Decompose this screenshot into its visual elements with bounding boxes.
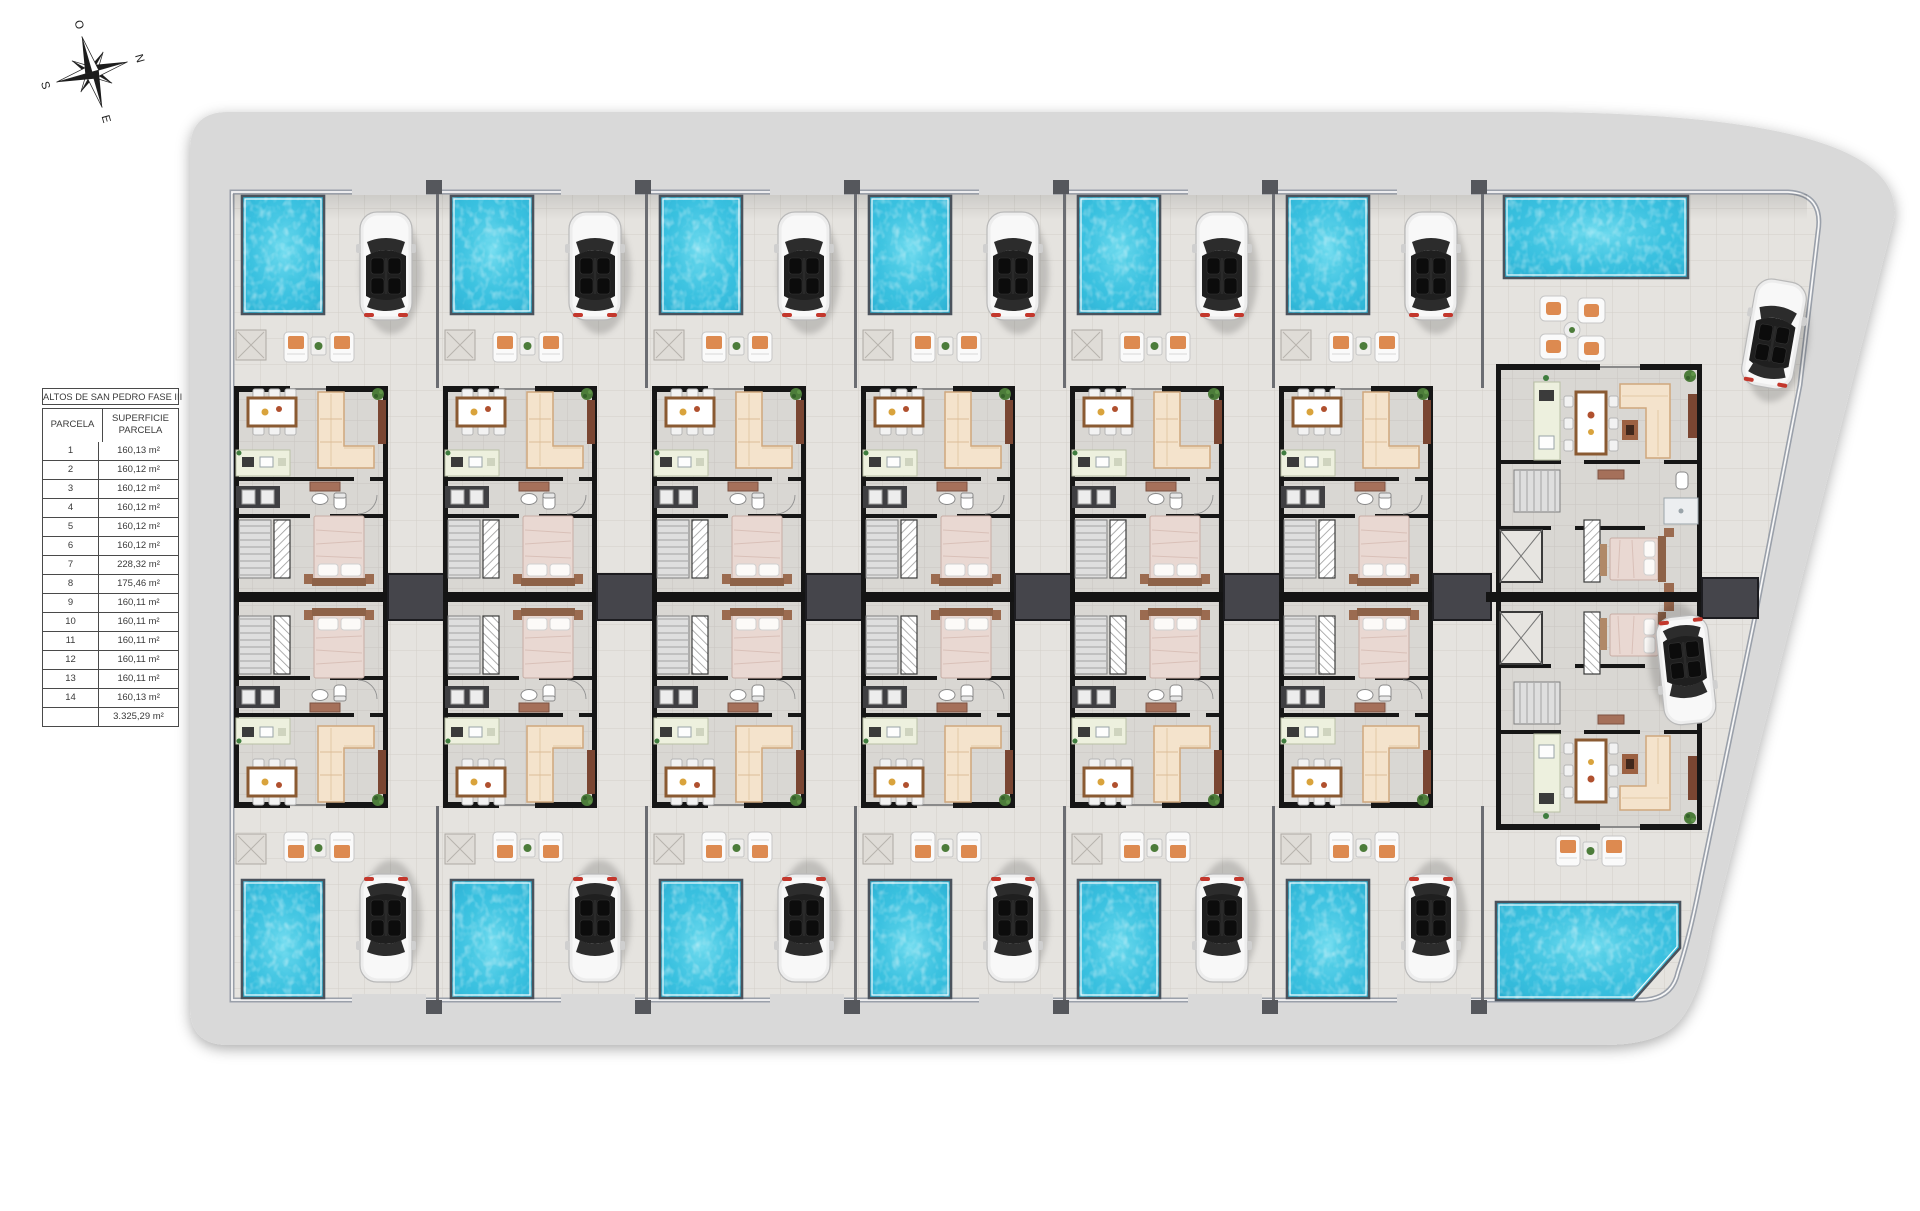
outdoor-shower-tile [236,834,266,864]
tv-unit [1423,400,1431,444]
kitchen-counter [445,718,499,744]
stairs [1514,682,1560,724]
outdoor-shower-tile [654,330,684,360]
outdoor-shower-tile [445,330,475,360]
parcel-number: 14 [43,689,99,707]
dining-set [1293,389,1341,435]
car [983,860,1049,982]
stairs [1075,616,1107,674]
stairs [448,616,480,674]
garden-fence [854,806,857,1004]
dining-set [457,759,505,805]
kitchen-counter [654,718,708,744]
wardrobe [1319,520,1335,578]
compass-rose: NESO [8,0,183,155]
outdoor-shower-tile [863,330,893,360]
kitchen-counter [1281,718,1335,744]
plant [581,794,593,806]
sun-lounger [284,832,308,862]
closet [236,486,280,508]
pool [1504,196,1688,278]
sun-lounger [493,332,517,362]
outdoor-shower-tile [654,834,684,864]
house [1070,386,1224,602]
house [1279,592,1433,808]
armchair [1540,296,1567,321]
total-empty-cell [43,708,99,726]
wide-house [1496,364,1702,602]
parcel-number: 5 [43,518,99,536]
sun-lounger [702,832,726,862]
car [1192,860,1258,982]
side-table [1147,337,1162,355]
tv-unit [1214,400,1222,444]
sun-lounger [1166,832,1190,862]
sun-lounger [1329,332,1353,362]
bed [1140,608,1210,678]
kitchen-counter [863,718,917,744]
sun-lounger [911,832,935,862]
sun-lounger [539,832,563,862]
parcel-row: 8 175,46 m² [43,574,178,593]
sun-lounger [539,332,563,362]
plant [999,388,1011,400]
tv-unit [1005,750,1013,794]
garden-fence [645,190,648,388]
bed [304,608,374,678]
garden-fence [645,806,648,1004]
parcel-number: 3 [43,480,99,498]
closet [863,686,907,708]
plant [1417,794,1429,806]
parcel-area: 175,46 m² [99,575,178,593]
garden-fence [1272,190,1275,388]
parcel-row: 10 160,11 m² [43,612,178,631]
gate-pier [1471,1000,1487,1014]
kitchen-counter [863,450,917,476]
bed [1349,608,1419,678]
parcel-row: 13 160,11 m² [43,669,178,688]
gate-pier [1262,1000,1278,1014]
side-table [1356,839,1371,857]
compass-south: S [38,80,52,91]
closet [654,686,698,708]
compass-west: O [71,19,85,31]
stairs [448,520,480,578]
kitchen-counter [1281,450,1335,476]
house [234,386,388,602]
parcel-area: 160,12 m² [99,518,178,536]
side-table [311,839,326,857]
parcel-number: 8 [43,575,99,593]
sun-lounger [284,332,308,362]
kitchen-counter [654,450,708,476]
garden-fence [1063,190,1066,388]
wardrobe [692,520,708,578]
armchair [1578,298,1605,323]
side-table [1583,842,1598,860]
parcel-table: ALTOS DE SAN PEDRO FASE III PARCELA SUPE… [42,388,179,727]
closet [1281,486,1325,508]
parcel-number: 11 [43,632,99,650]
side-table [1147,839,1162,857]
parcel-area: 160,11 m² [99,670,178,688]
sun-lounger [493,832,517,862]
outdoor-shower-tile [1281,330,1311,360]
house [1070,592,1224,808]
dining-set [1084,759,1132,805]
site-plan [0,0,1920,1211]
parcel-number: 1 [43,442,99,460]
parcel-area: 160,12 m² [99,499,178,517]
outdoor-shower-tile [445,834,475,864]
stairs [239,520,271,578]
side-table [520,337,535,355]
house [652,386,806,602]
mid-connector [1015,574,1073,620]
sun-lounger [1120,832,1144,862]
tv-unit [378,400,386,444]
dining-set [248,389,296,435]
party-wall [652,592,806,602]
house [443,386,597,602]
kitchen-counter [1072,718,1126,744]
wardrobe [692,616,708,674]
parcel-row: 11 160,11 m² [43,631,178,650]
closet [445,486,489,508]
kitchen-island [1534,734,1560,819]
wardrobe [1584,612,1600,674]
gate-pier [1053,1000,1069,1014]
sun-lounger [1375,832,1399,862]
dining-set [666,389,714,435]
parcel-row: 5 160,12 m² [43,517,178,536]
stairs [239,616,271,674]
sun-lounger [330,832,354,862]
parcel-total-row: 3.325,29 m² [43,707,178,726]
parcel-row: 14 160,13 m² [43,688,178,707]
parcel-table-grid: PARCELA SUPERFICIE PARCELA 1 160,13 m² 2… [42,408,179,727]
house [861,592,1015,808]
parcel-number: 2 [43,461,99,479]
party-wall [1486,592,1702,602]
sun-lounger [702,332,726,362]
mid-connector [1224,574,1282,620]
pool [242,880,324,998]
sun-lounger [957,332,981,362]
car [774,860,840,982]
side-table [311,337,326,355]
dining-set [875,759,923,805]
garden-fence [1481,806,1484,1004]
dining-set [1564,392,1618,454]
plant [1208,794,1220,806]
sun-lounger [1120,332,1144,362]
parcel-number: 9 [43,594,99,612]
bed [513,608,583,678]
pool [1287,880,1369,998]
header-parcela: PARCELA [43,409,103,442]
gate-pier [635,1000,651,1014]
pool [1287,196,1369,314]
wardrobe [1110,616,1126,674]
pool [660,196,742,314]
garden-fence [436,190,439,388]
bed [304,516,374,586]
wardrobe [483,616,499,674]
bed [931,608,1001,678]
sun-lounger [1329,832,1353,862]
outdoor-shower-tile [863,834,893,864]
stairs [866,616,898,674]
bed [513,516,583,586]
parcel-row: 6 160,12 m² [43,536,178,555]
tv-unit [378,750,386,794]
car [356,860,422,982]
car [983,212,1049,334]
house [1279,386,1433,602]
elevator-shaft [1500,612,1542,664]
car [565,860,631,982]
tv-unit [1005,400,1013,444]
parcel-number: 10 [43,613,99,631]
sun-lounger [330,332,354,362]
tv-unit [1214,750,1222,794]
side-table [938,337,953,355]
parcel-table-header: PARCELA SUPERFICIE PARCELA [43,409,178,442]
parcel-area: 160,11 m² [99,632,178,650]
bed [722,516,792,586]
closet [445,686,489,708]
party-wall [234,592,388,602]
house [234,592,388,808]
gate-pier [1471,180,1487,194]
car [565,212,631,334]
gate-pier [426,180,442,194]
plant [1684,812,1696,824]
plant [999,794,1011,806]
dining-set [1084,389,1132,435]
dining-set [1293,759,1341,805]
sun-lounger [1166,332,1190,362]
gate-pier [844,1000,860,1014]
plant [581,388,593,400]
party-wall [1279,592,1433,602]
compass-north: N [132,53,146,64]
mid-connector [388,574,446,620]
sun-lounger [911,332,935,362]
pool [869,196,951,314]
sun-lounger [1556,836,1580,866]
parcel-number: 7 [43,556,99,574]
house [652,592,806,808]
outdoor-shower-tile [236,330,266,360]
bed [722,608,792,678]
wardrobe [901,520,917,578]
pool [451,880,533,998]
parcel-number: 13 [43,670,99,688]
outdoor-shower-tile [1072,330,1102,360]
parcel-row: 2 160,12 m² [43,460,178,479]
parcel-number: 6 [43,537,99,555]
pool [660,880,742,998]
parcel-row: 3 160,12 m² [43,479,178,498]
parcel-area: 160,11 m² [99,613,178,631]
pool [451,196,533,314]
mid-connector [597,574,655,620]
plant [790,794,802,806]
pool [1078,196,1160,314]
car [1401,212,1467,334]
stairs [866,520,898,578]
dining-set [248,759,296,805]
closet [863,486,907,508]
side-table [938,839,953,857]
tv-unit [587,750,595,794]
bench [1600,618,1607,650]
sideboard [1688,394,1697,438]
elevator-shaft [1500,530,1542,582]
closet [1072,686,1116,708]
armchair [1578,336,1605,361]
mid-connector [806,574,864,620]
plant [1684,370,1696,382]
sun-lounger [1375,332,1399,362]
gate-pier [635,180,651,194]
dining-set [1564,740,1618,802]
stairs [1075,520,1107,578]
wardrobe [1110,520,1126,578]
parcel-row: 9 160,11 m² [43,593,178,612]
parcel-number: 12 [43,651,99,669]
kitchen-counter [236,450,290,476]
parcel-number: 4 [43,499,99,517]
pool [869,880,951,998]
wardrobe [901,616,917,674]
parcel-area: 160,12 m² [99,537,178,555]
house [861,386,1015,602]
plant [790,388,802,400]
parcel-row: 1 160,13 m² [43,442,178,460]
sun-lounger [748,332,772,362]
bed [1140,516,1210,586]
parcel-area: 160,13 m² [99,442,178,460]
parcel-area: 160,11 m² [99,651,178,669]
house [443,592,597,808]
dining-set [875,389,923,435]
party-wall [861,592,1015,602]
side-table [520,839,535,857]
kitchen-counter [1072,450,1126,476]
bench [1600,544,1607,576]
parcel-area: 160,13 m² [99,689,178,707]
mid-connector [1433,574,1491,620]
armchair [1540,334,1567,359]
kitchen-island [1534,375,1560,460]
closet [1072,486,1116,508]
bed [1349,516,1419,586]
plant [1208,388,1220,400]
side-table [729,839,744,857]
stairs [657,520,689,578]
gate-pier [1262,180,1278,194]
pool [1078,880,1160,998]
stairs [1284,520,1316,578]
compass-east: E [99,114,113,125]
closet [654,486,698,508]
plant [372,794,384,806]
bed [931,516,1001,586]
side-table [1356,337,1371,355]
pool [242,196,324,314]
sun-lounger [748,832,772,862]
parcel-area: 160,11 m² [99,594,178,612]
parcel-rows: 1 160,13 m² 2 160,12 m² 3 160,12 m² 4 16… [43,442,178,707]
kitchen-counter [445,450,499,476]
garden-fence [1481,190,1484,388]
party-wall [443,592,597,602]
parcel-table-title: ALTOS DE SAN PEDRO FASE III [42,388,179,405]
gate-pier [1053,180,1069,194]
parcel-row: 12 160,11 m² [43,650,178,669]
wardrobe [1584,520,1600,582]
dining-set [666,759,714,805]
sun-lounger [957,832,981,862]
parcel-area: 228,32 m² [99,556,178,574]
tv-unit [796,750,804,794]
parcel-row: 4 160,12 m² [43,498,178,517]
plant [372,388,384,400]
plant [1417,388,1429,400]
car [774,212,840,334]
header-superficie: SUPERFICIE PARCELA [103,409,178,442]
tv-unit [1423,750,1431,794]
outdoor-shower-tile [1072,834,1102,864]
stairs [657,616,689,674]
side-table [729,337,744,355]
dining-set [457,389,505,435]
garden-fence [436,806,439,1004]
gate-pier [844,180,860,194]
stairs [1284,616,1316,674]
kitchen-counter [236,718,290,744]
parcel-row: 7 228,32 m² [43,555,178,574]
car [1401,860,1467,982]
mid-connector [1702,578,1758,618]
wardrobe [274,520,290,578]
parcel-area: 160,12 m² [99,480,178,498]
site-plan-page: NESO ALTOS DE SAN PEDRO FASE III PARCELA… [0,0,1920,1211]
stairs [1514,470,1560,512]
sun-lounger [1602,836,1626,866]
gate-pier [426,1000,442,1014]
garden-fence [1063,806,1066,1004]
wardrobe [274,616,290,674]
closet [1281,686,1325,708]
car [1192,212,1258,334]
garden-fence [854,190,857,388]
garden-fence [1272,806,1275,1004]
tv-unit [587,400,595,444]
tv-unit [796,400,804,444]
total-superficie: 3.325,29 m² [99,708,178,726]
party-wall [1070,592,1224,602]
sideboard [1688,756,1697,800]
outdoor-shower-tile [1281,834,1311,864]
wardrobe [1319,616,1335,674]
parcel-area: 160,12 m² [99,461,178,479]
car [356,212,422,334]
